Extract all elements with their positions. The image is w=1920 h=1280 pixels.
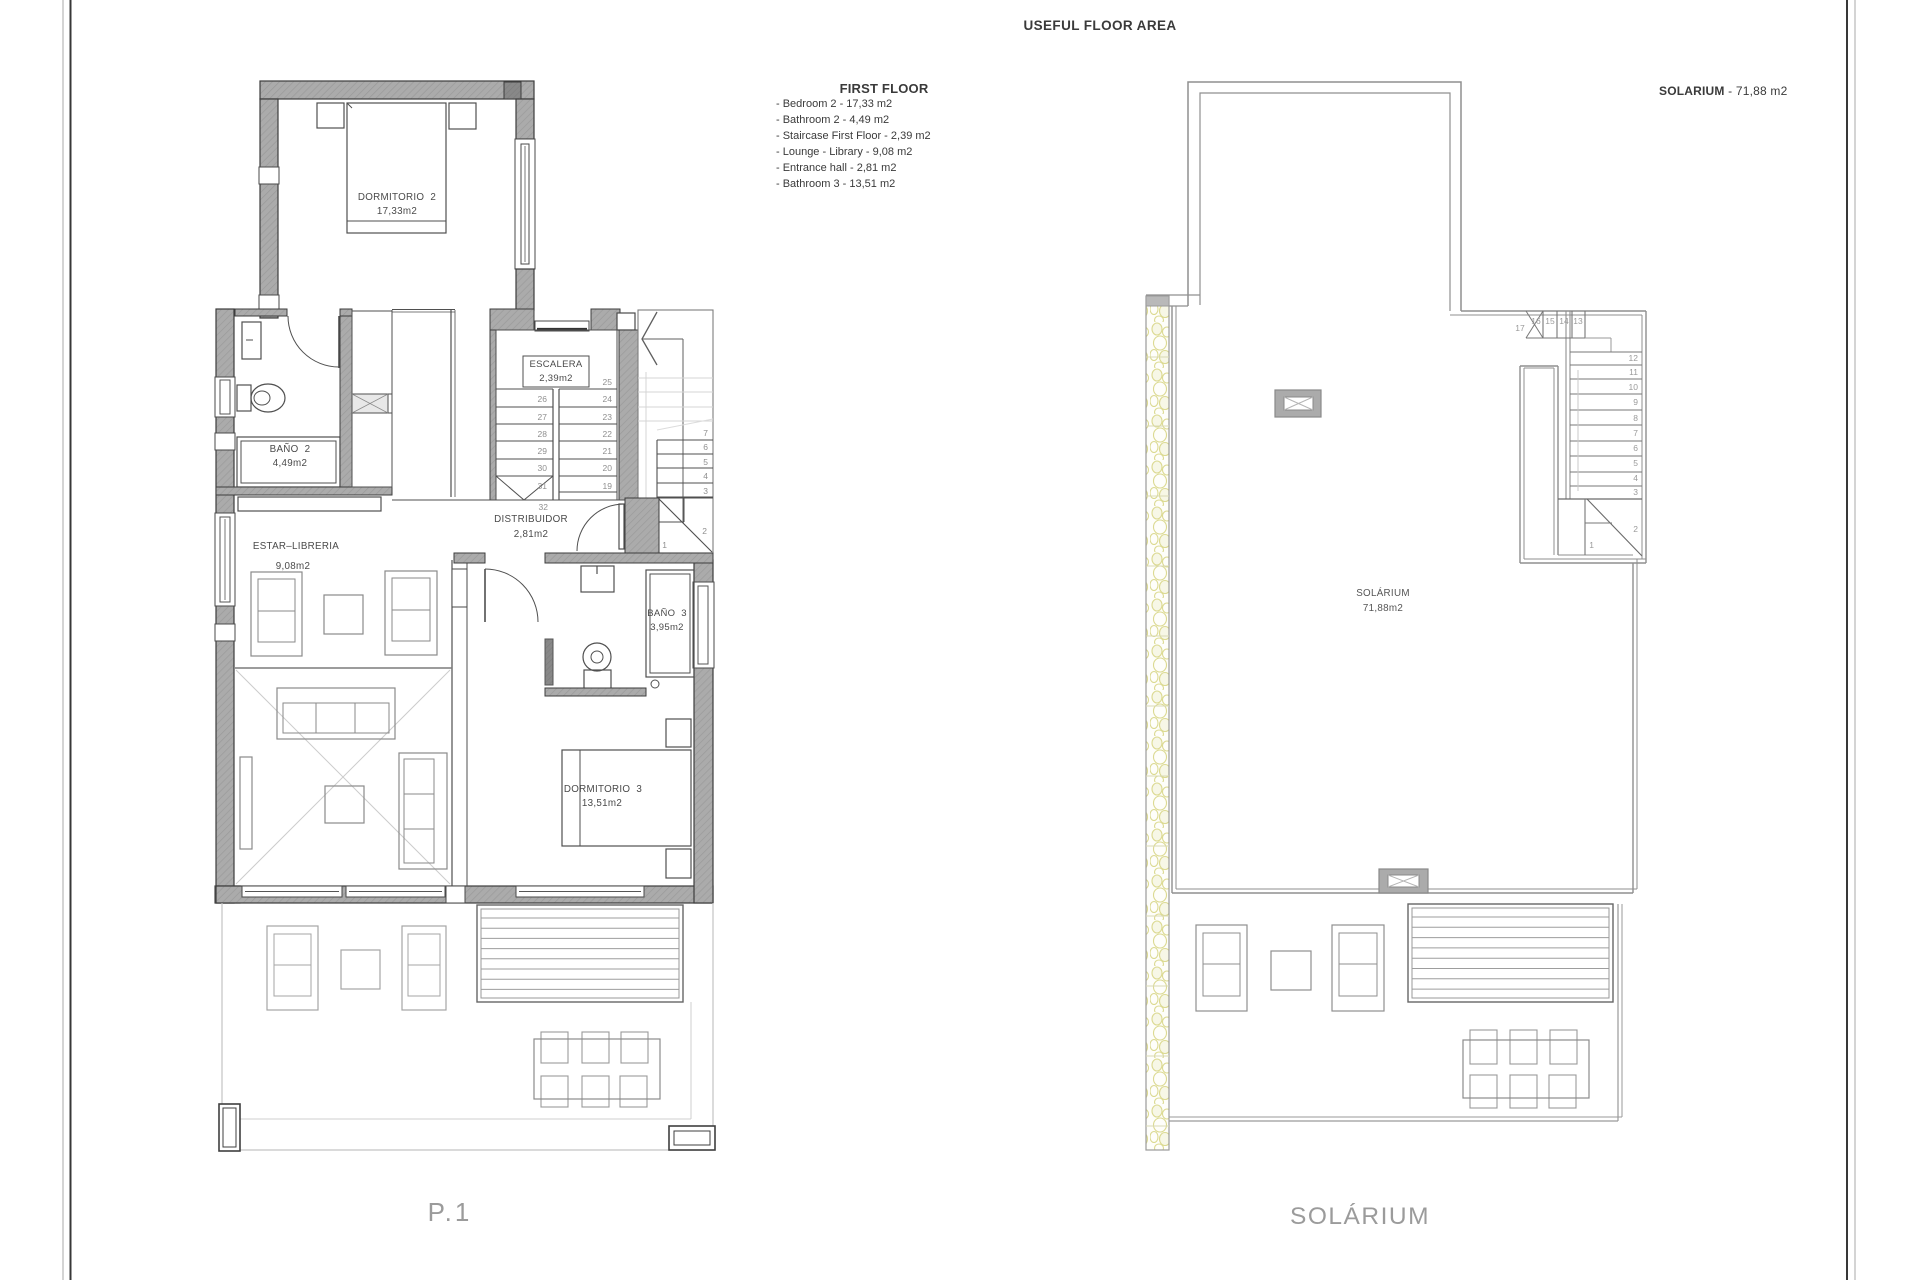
svg-text:- Bedroom 2 - 17,33 m2: - Bedroom 2 - 17,33 m2 <box>776 98 892 110</box>
svg-text:FIRST FLOOR: FIRST FLOOR <box>840 81 929 96</box>
svg-text:13: 13 <box>1573 316 1583 326</box>
svg-text:DORMITORIO 2: DORMITORIO 2 <box>358 192 436 203</box>
svg-text:ESTAR–LIBRERIA: ESTAR–LIBRERIA <box>253 541 339 552</box>
svg-text:BAÑO 3: BAÑO 3 <box>647 608 687 619</box>
svg-text:- Entrance hall - 2,81 m2: - Entrance hall - 2,81 m2 <box>776 162 896 174</box>
svg-text:27: 27 <box>538 412 548 422</box>
svg-text:2: 2 <box>702 526 707 536</box>
svg-text:SOLARIUM - 71,88 m2: SOLARIUM - 71,88 m2 <box>1659 84 1788 98</box>
svg-text:USEFUL FLOOR AREA: USEFUL FLOOR AREA <box>1023 18 1176 33</box>
svg-text:- Bathroom 2 - 4,49 m2: - Bathroom 2 - 4,49 m2 <box>776 114 889 126</box>
svg-text:5: 5 <box>1633 458 1638 468</box>
svg-text:14: 14 <box>1559 316 1569 326</box>
svg-text:21: 21 <box>603 446 613 456</box>
svg-text:24: 24 <box>603 394 613 404</box>
svg-text:3: 3 <box>1633 487 1638 497</box>
svg-text:3: 3 <box>703 486 708 496</box>
svg-text:DISTRIBUIDOR: DISTRIBUIDOR <box>494 514 568 525</box>
svg-text:ESCALERA: ESCALERA <box>529 359 582 370</box>
svg-text:6: 6 <box>703 442 708 452</box>
svg-text:28: 28 <box>538 429 548 439</box>
svg-text:- Lounge - Library - 9,08 m2: - Lounge - Library - 9,08 m2 <box>776 146 912 158</box>
svg-text:4: 4 <box>703 471 708 481</box>
svg-text:9,08m2: 9,08m2 <box>276 561 310 572</box>
svg-text:3,95m2: 3,95m2 <box>650 622 684 633</box>
svg-text:29: 29 <box>538 446 548 456</box>
svg-text:19: 19 <box>603 481 613 491</box>
svg-text:7: 7 <box>1633 428 1638 438</box>
svg-text:12: 12 <box>1629 353 1639 363</box>
svg-text:17,33m2: 17,33m2 <box>377 206 417 217</box>
svg-text:13,51m2: 13,51m2 <box>582 798 622 809</box>
svg-text:- Bathroom 3 - 13,51 m2: - Bathroom 3 - 13,51 m2 <box>776 178 895 190</box>
svg-text:22: 22 <box>603 429 613 439</box>
svg-text:31: 31 <box>538 481 548 491</box>
svg-text:1: 1 <box>662 540 667 550</box>
svg-text:SOLÁRIUM: SOLÁRIUM <box>1356 588 1410 599</box>
svg-text:26: 26 <box>538 394 548 404</box>
svg-text:7: 7 <box>703 428 708 438</box>
svg-text:32: 32 <box>539 502 549 512</box>
svg-text:BAÑO 2: BAÑO 2 <box>270 444 311 455</box>
svg-text:10: 10 <box>1629 382 1639 392</box>
svg-text:2,39m2: 2,39m2 <box>539 373 573 384</box>
svg-text:DORMITORIO 3: DORMITORIO 3 <box>564 784 643 795</box>
svg-text:4,49m2: 4,49m2 <box>273 458 307 469</box>
svg-text:8: 8 <box>1633 413 1638 423</box>
svg-text:SOLÁRIUM: SOLÁRIUM <box>1290 1203 1430 1230</box>
svg-text:2,81m2: 2,81m2 <box>514 529 548 540</box>
svg-text:15: 15 <box>1545 316 1555 326</box>
svg-text:4: 4 <box>1633 473 1638 483</box>
svg-text:5: 5 <box>703 457 708 467</box>
svg-text:30: 30 <box>538 463 548 473</box>
svg-text:9: 9 <box>1633 397 1638 407</box>
svg-text:20: 20 <box>603 463 613 473</box>
svg-text:2: 2 <box>1633 524 1638 534</box>
svg-text:71,88m2: 71,88m2 <box>1363 603 1403 614</box>
svg-text:11: 11 <box>1629 367 1638 377</box>
svg-text:- Staircase First Floor - 2,39: - Staircase First Floor - 2,39 m2 <box>776 130 931 142</box>
svg-text:17: 17 <box>1515 323 1525 333</box>
svg-text:P.1: P.1 <box>428 1197 473 1227</box>
svg-text:16: 16 <box>1531 316 1541 326</box>
svg-text:25: 25 <box>603 377 613 387</box>
svg-text:1: 1 <box>1589 540 1594 550</box>
svg-text:23: 23 <box>603 412 613 422</box>
svg-text:6: 6 <box>1633 443 1638 453</box>
